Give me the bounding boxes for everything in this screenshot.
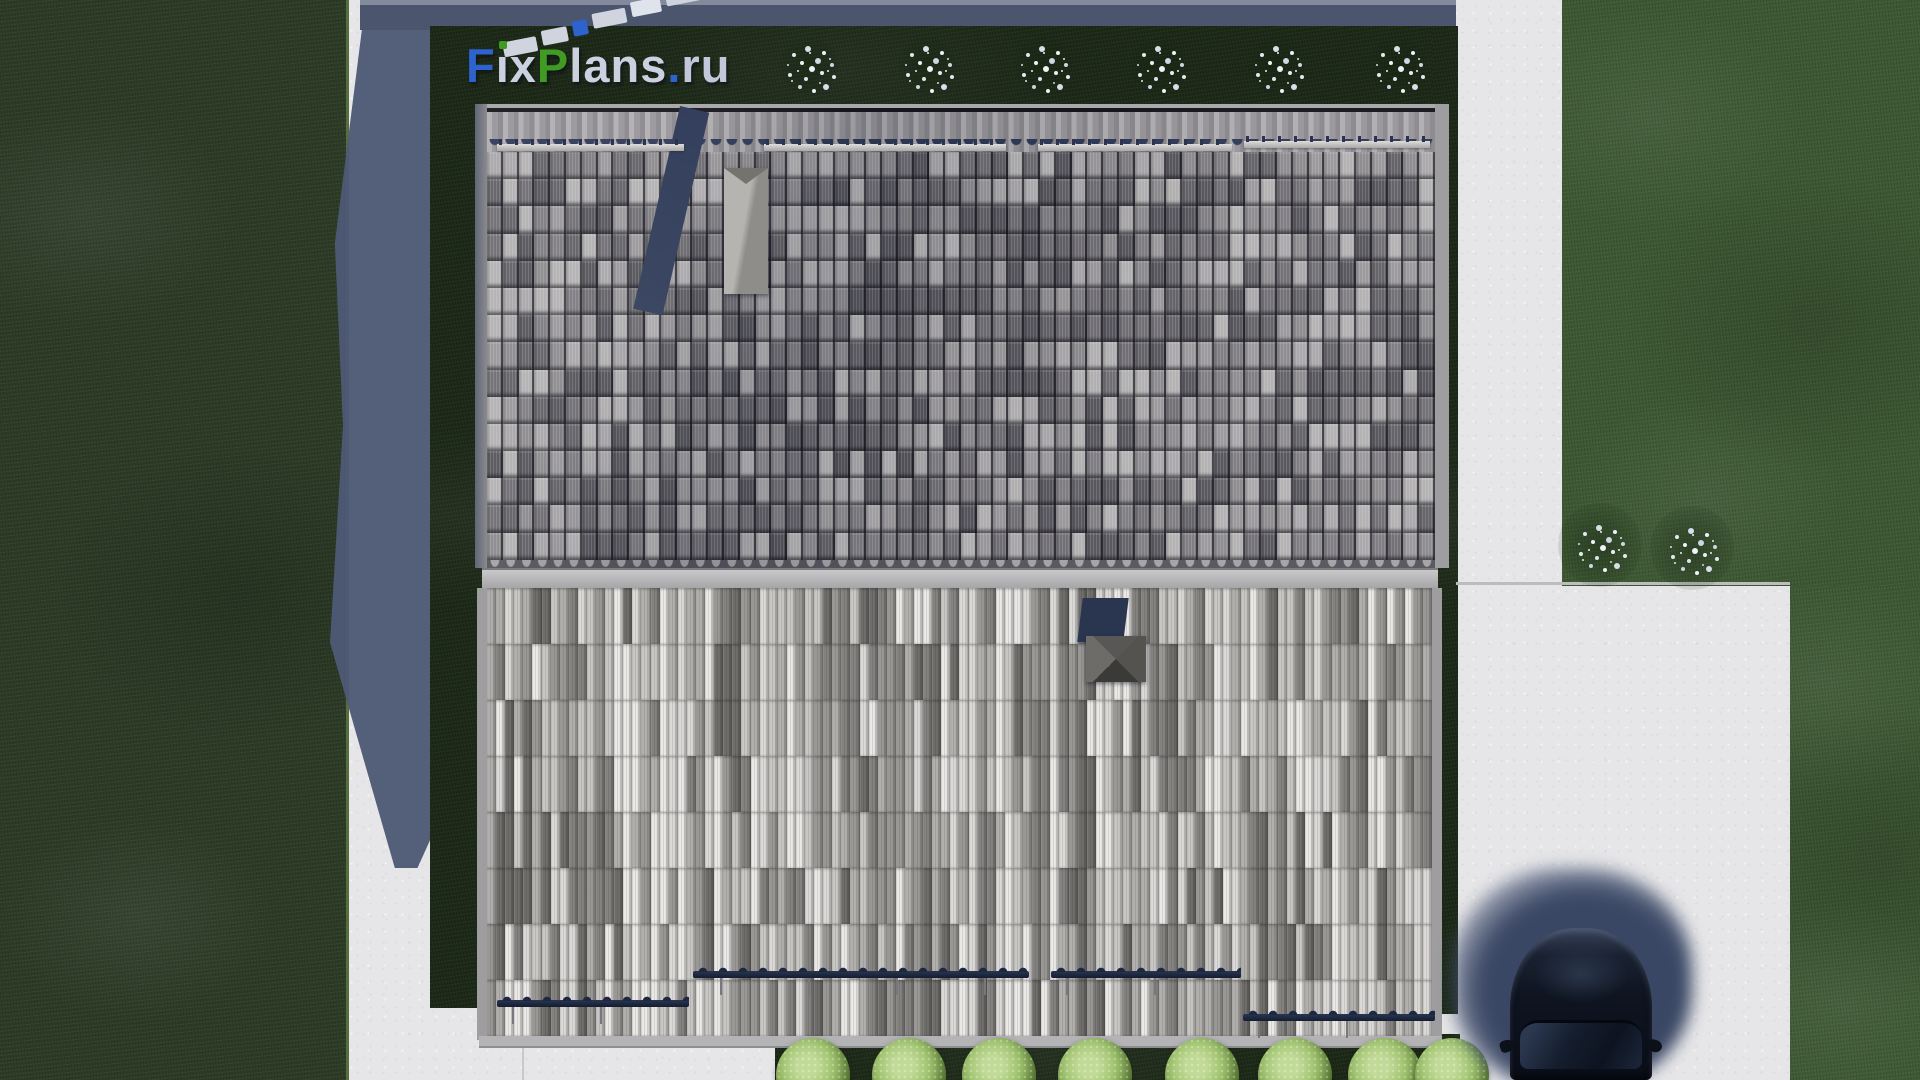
lower-roof-fascia-right [1432,588,1442,1040]
roof-tile [669,644,678,700]
roof-tile [850,868,859,924]
roof-tile [760,868,769,924]
roof-tile [1423,924,1432,980]
roof-tile [1314,812,1323,868]
roof-tile [1041,980,1050,1036]
roof-tile [669,700,678,756]
roof-tile [687,812,696,868]
roof-tile [896,644,905,700]
roof-tile [932,868,941,924]
roof-tile [987,588,996,644]
roof-tile [1305,588,1314,644]
flowering-bush [780,37,838,95]
roof-tile [905,700,914,756]
roof-tile [641,700,650,756]
roof-tile [632,588,641,644]
roof-tile [569,700,578,756]
roof-tile [587,588,596,644]
logo-letter: F [466,38,496,93]
roof-tile [1332,588,1341,644]
roof-tile [532,924,541,980]
flowering-bush [1558,503,1642,587]
roof-tile [705,812,714,868]
roof-tile [1296,644,1305,700]
roof-tile [1405,756,1414,812]
roof-tile [805,588,814,644]
roof-tile [1196,588,1205,644]
roof-tile [696,644,705,700]
roof-tile [1168,700,1177,756]
roof-tile [878,644,887,700]
roof-tile [1105,812,1114,868]
roof-tile [941,812,950,868]
roof-tile [850,588,859,644]
snow-guard-rail-lower [1243,1014,1435,1021]
roof-tile [914,644,923,700]
roof-tile [1005,588,1014,644]
roof-tile [832,756,841,812]
roof-tile [1223,868,1232,924]
roof-tile [914,812,923,868]
roof-tile [741,588,750,644]
roof-tile [1341,700,1350,756]
roof-tile [1259,756,1268,812]
roof-tile [1314,588,1323,644]
roof-tile [1241,756,1250,812]
roof-tile [1005,756,1014,812]
roof-tile [1296,812,1305,868]
roof-tile [1087,868,1096,924]
roof-tile [505,644,514,700]
roof-tile [723,644,732,700]
roof-tile [496,700,505,756]
roof-tile [778,700,787,756]
roof-tile [732,588,741,644]
roof-tile [1178,812,1187,868]
roof-tile [905,756,914,812]
roof-tile [1296,924,1305,980]
roof-tile [1059,644,1068,700]
roof-tile [751,756,760,812]
roof-tile [1359,812,1368,868]
roof-tile [887,588,896,644]
roof-tile [1078,868,1087,924]
roof-tile [1159,756,1168,812]
roof-tile [1123,812,1132,868]
logo-letter: s [640,38,667,93]
roof-tile [950,812,959,868]
roof-tile [578,700,587,756]
roof-tile [596,588,605,644]
watermark-fragment [571,19,589,37]
roof-tile [769,644,778,700]
roof-tile [560,812,569,868]
roof-tile [605,756,614,812]
roof-tile [623,700,632,756]
roof-tile [932,756,941,812]
roof-tile [823,588,832,644]
roof-tile [1241,644,1250,700]
roof-tile [1050,756,1059,812]
roof-tile [1214,700,1223,756]
roof-tile [641,644,650,700]
roof-tile [623,756,632,812]
roof-tile [869,812,878,868]
roof-tile [896,588,905,644]
roof-tile [778,644,787,700]
roof-tile [841,588,850,644]
roof-tile [1296,700,1305,756]
roof-tile [678,868,687,924]
roof-tile [1405,700,1414,756]
roof-tile [523,588,532,644]
roof-tile [1423,644,1432,700]
roof-tile [978,756,987,812]
roof-tile [850,812,859,868]
roof-tile [1123,868,1132,924]
roof-tile [1296,756,1305,812]
roof-tile [1387,644,1396,700]
roof-tile [941,756,950,812]
roof-tile [1387,700,1396,756]
roof-tile [514,756,523,812]
roof-tile [1414,644,1423,700]
roof-tile [714,644,723,700]
roof-tile [923,588,932,644]
roof-tile [1423,588,1432,644]
flowering-bush [1014,37,1072,95]
snow-guard-rail-upper [1038,144,1232,151]
roof-tile [1050,980,1059,1036]
roof-tile [1268,644,1277,700]
roof-tile [1350,812,1359,868]
roof-tile [841,812,850,868]
roof-tile [1096,812,1105,868]
roof-tile [996,588,1005,644]
roof-tile [678,756,687,812]
roof-tile [587,644,596,700]
roof-tile [1332,756,1341,812]
roof-tile [542,812,551,868]
roof-tile [905,812,914,868]
roof-tile [1323,868,1332,924]
roof-tile [578,756,587,812]
roof-tile [796,868,805,924]
roof-tile [796,812,805,868]
roof-tile [514,812,523,868]
roof-tile [1368,868,1377,924]
roof-tile [569,812,578,868]
roof-tile [751,700,760,756]
roof-tile [1387,588,1396,644]
roof-tile [542,700,551,756]
roof-tile [1396,644,1405,700]
snow-guard-rail-upper [497,144,684,151]
roof-tile [914,868,923,924]
roof-tile [796,756,805,812]
roof-tile [696,700,705,756]
roof-tile [1368,700,1377,756]
roof-tile [823,700,832,756]
roof-tile [542,924,551,980]
roof-tile [823,644,832,700]
roof-tile [896,868,905,924]
roof-tile [496,756,505,812]
roof-tile [1241,700,1250,756]
roof-tile [1032,700,1041,756]
roof-tile [1069,756,1078,812]
roof-tile [1014,868,1023,924]
logo-letter: ı [496,38,510,93]
roof-tile [1059,700,1068,756]
roof-tile [1377,868,1386,924]
roof-tile [805,868,814,924]
roof-tile [769,700,778,756]
roof-tile [751,644,760,700]
roof-tile [705,644,714,700]
roof-tile [814,812,823,868]
roof-tile [532,812,541,868]
roof-tile [832,588,841,644]
roof-tile [1268,812,1277,868]
roof-tile [551,644,560,700]
roof-tile [1387,924,1396,980]
roof-tile [751,588,760,644]
roof-tile [1105,700,1114,756]
roof-tile [687,756,696,812]
roof-tile [569,868,578,924]
roof-tile [487,700,496,756]
roof-tile [1314,924,1323,980]
roof-tile [769,588,778,644]
roof-tile [832,868,841,924]
logo-letter: u [701,38,731,93]
roof-tile [760,644,769,700]
roof-tile [1178,588,1187,644]
roof-tile [523,644,532,700]
roof-tile [560,756,569,812]
roof-tile [678,644,687,700]
roof-tile [487,812,496,868]
roof-tile [1305,868,1314,924]
roof-tile [796,700,805,756]
roof-tile [1041,700,1050,756]
roof-tile [959,812,968,868]
roof-tile [787,868,796,924]
roof-tile [1223,812,1232,868]
roof-tile [560,924,569,980]
roof-tile [1359,868,1368,924]
roof-tile [1005,868,1014,924]
roof-tile [1259,868,1268,924]
roof-tile [1423,812,1432,868]
roof-tile [714,812,723,868]
roof-tile [1123,700,1132,756]
roof-tile [605,868,614,924]
roof-tile [660,588,669,644]
roof-tile [1405,812,1414,868]
lawn-left [0,0,349,1080]
roof-tile [660,644,669,700]
roof-tile [1168,812,1177,868]
chimney [724,168,768,294]
roof-tile [1377,812,1386,868]
roof-tile [1377,700,1386,756]
roof-tile [1196,812,1205,868]
roof-tile [1332,700,1341,756]
roof-tile [741,756,750,812]
roof-tile [1368,812,1377,868]
roof-tile [1032,980,1041,1036]
roof-tile [832,812,841,868]
roof-tile [560,588,569,644]
roof-tile [1305,924,1314,980]
roof-tile [778,812,787,868]
roof-tile [741,812,750,868]
roof-tile [1087,700,1096,756]
roof-tile [1223,644,1232,700]
roof-tile [514,700,523,756]
roof-tile [632,924,641,980]
roof-tile [1069,700,1078,756]
roof-tile [787,756,796,812]
roof-tile [1196,700,1205,756]
roof-tile [1141,700,1150,756]
roof-tile [532,700,541,756]
roof-tile [1050,700,1059,756]
roof-tile [741,868,750,924]
roof-tile [1096,756,1105,812]
roof-tile [1050,812,1059,868]
roof-tile [841,700,850,756]
roof-tile [896,812,905,868]
roof-tile [596,812,605,868]
roof-tile [1387,812,1396,868]
roof-tile [578,588,587,644]
roof-tile [869,644,878,700]
roof-tile [950,700,959,756]
roof-tile [1114,700,1123,756]
roof-tile [542,644,551,700]
roof-tile [705,980,714,1036]
roof-tile [1359,924,1368,980]
snow-guard-rail-upper [764,144,1006,151]
roof-tile [969,756,978,812]
roof-tile [1041,644,1050,700]
roof-tile [632,644,641,700]
roof-tile [1396,868,1405,924]
roof-tile [1250,924,1259,980]
roof-tile [1241,980,1250,1036]
roof-tile [1278,700,1287,756]
roof-tile [1214,812,1223,868]
roof-tile [860,812,869,868]
roof-tile [1387,756,1396,812]
roof-tile [587,868,596,924]
roof-tile [978,868,987,924]
roof-tile [905,588,914,644]
roof-tile [1396,588,1405,644]
roof-tile [505,700,514,756]
roof-tile [832,700,841,756]
roof-tile [1341,812,1350,868]
roof-tile [1323,700,1332,756]
roof-tile [769,756,778,812]
roof-tile [950,868,959,924]
roof-tile [1150,812,1159,868]
roof-tile [651,644,660,700]
roof-tile [496,868,505,924]
roof-tile [887,644,896,700]
roof-tile [1032,812,1041,868]
roof-tile [1368,756,1377,812]
roof-tile [1178,756,1187,812]
roof-tile [1268,756,1277,812]
roof-tile [1005,812,1014,868]
roof-tile [614,588,623,644]
roof-tile [651,756,660,812]
roof-tile [560,644,569,700]
roof-tile [860,700,869,756]
roof-tile [1332,644,1341,700]
roof-tile [1250,868,1259,924]
flowering-bush [1248,37,1306,95]
roof-tile [1241,588,1250,644]
roof-tile [678,924,687,980]
roof-tile [732,812,741,868]
flowering-bush [1650,506,1734,590]
roof-tile [732,868,741,924]
roof-tile [632,756,641,812]
roof-tile [1132,812,1141,868]
roof-tile [623,868,632,924]
roof-tile [1205,644,1214,700]
roof-tile [978,812,987,868]
logo-letter: l [569,38,583,93]
roof-tile [1323,756,1332,812]
roof-tile [669,868,678,924]
roof-tile [787,588,796,644]
roof-tile [1078,700,1087,756]
roof-tile [596,924,605,980]
roof-tile [542,868,551,924]
roof-tile [987,812,996,868]
roof-tile [1187,868,1196,924]
roof-tile [1214,588,1223,644]
roof-tile [1223,756,1232,812]
roof-tile [696,812,705,868]
roof-tile [932,812,941,868]
roof-tile [660,700,669,756]
watermark-fragment [664,0,700,6]
roof-tile [551,812,560,868]
roof-tile [1259,588,1268,644]
roof-tile [1023,756,1032,812]
roof-tile [959,644,968,700]
roof-tile [505,756,514,812]
flowering-bush [1369,37,1427,95]
roof-tile [1041,868,1050,924]
roof-tile [542,756,551,812]
roof-tile [687,868,696,924]
roof-tile [569,756,578,812]
roof-tile [1150,700,1159,756]
roof-tile [814,756,823,812]
roof-tile [1259,924,1268,980]
roof-tile [978,644,987,700]
roof-tile [1341,868,1350,924]
roof-tile [596,700,605,756]
